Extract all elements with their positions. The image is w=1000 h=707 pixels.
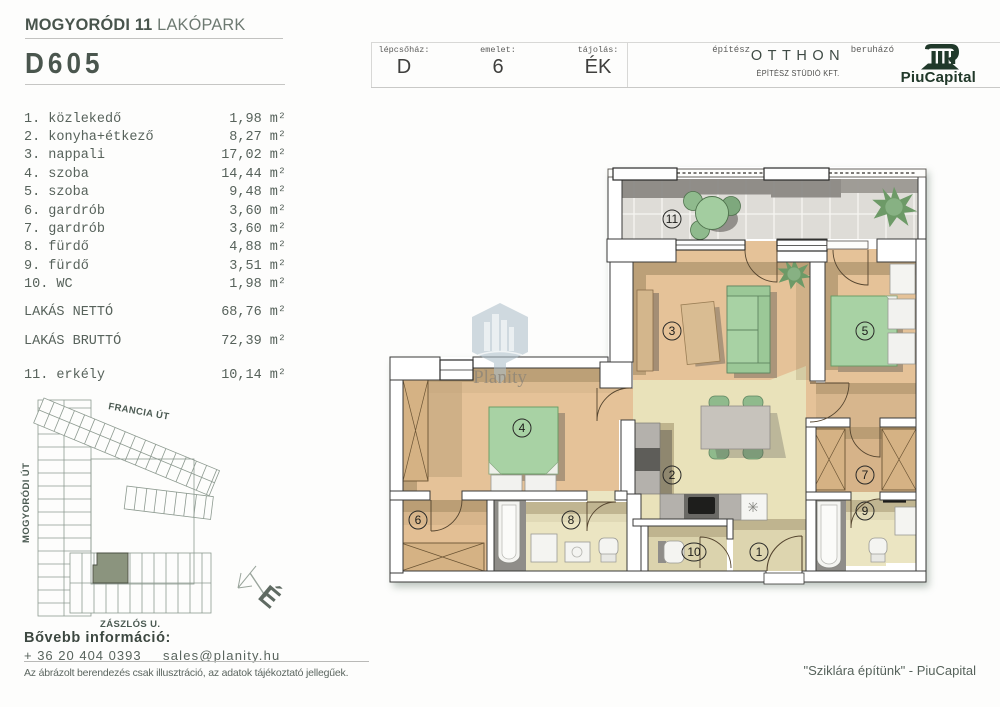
svg-text:11: 11 <box>666 212 679 226</box>
svg-text:5: 5 <box>862 324 869 338</box>
svg-text:6: 6 <box>415 513 422 527</box>
svg-text:3: 3 <box>669 324 676 338</box>
svg-text:7: 7 <box>862 468 869 482</box>
svg-text:ZÁSZLÓS U.: ZÁSZLÓS U. <box>100 618 160 630</box>
svg-text:FRANCIA ÚT: FRANCIA ÚT <box>107 400 170 423</box>
svg-text:1: 1 <box>756 545 763 559</box>
svg-text:4: 4 <box>519 421 526 435</box>
svg-text:8: 8 <box>568 513 575 527</box>
svg-text:10: 10 <box>687 545 701 559</box>
svg-text:Planity: Planity <box>473 367 527 388</box>
svg-text:MOGYORÓDI ÚT: MOGYORÓDI ÚT <box>20 463 32 543</box>
svg-text:9: 9 <box>862 504 869 518</box>
svg-text:2: 2 <box>669 468 676 482</box>
